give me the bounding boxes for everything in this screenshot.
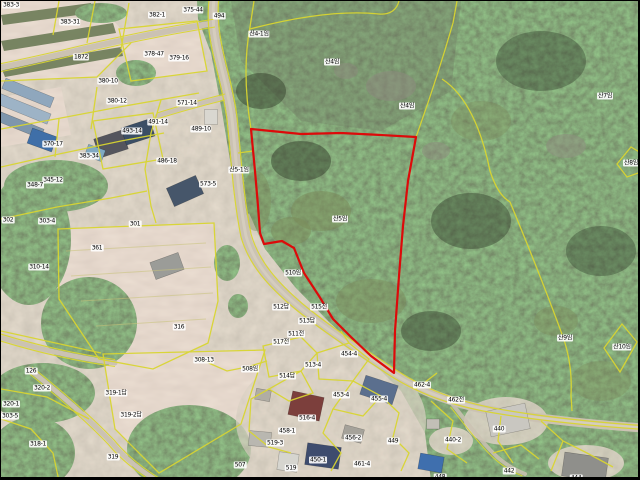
map-viewport[interactable]: 383-3383-311872382-1375-44494378-47379-1… [0, 0, 640, 480]
map-graphics [1, 1, 640, 480]
